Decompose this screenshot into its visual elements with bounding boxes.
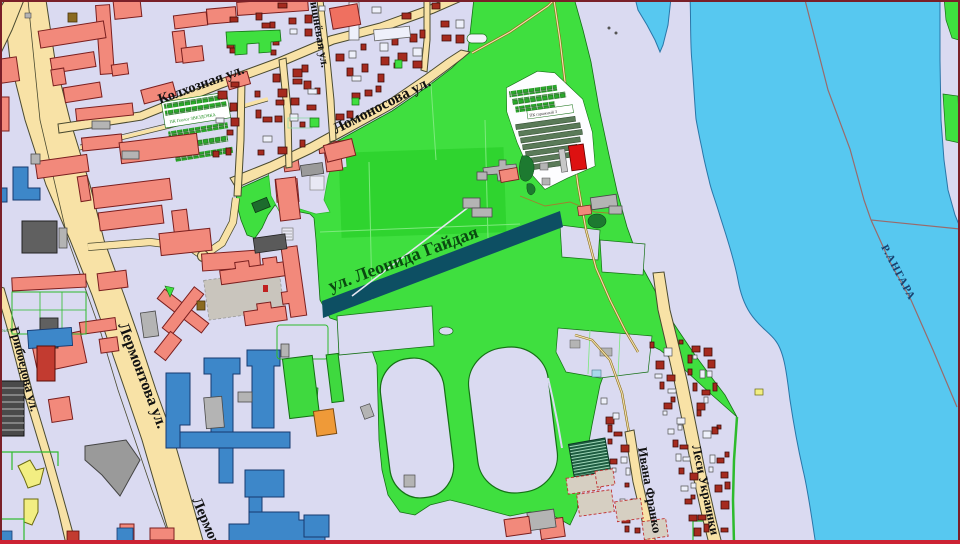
svg-text:№977: №977 [2, 328, 12, 333]
